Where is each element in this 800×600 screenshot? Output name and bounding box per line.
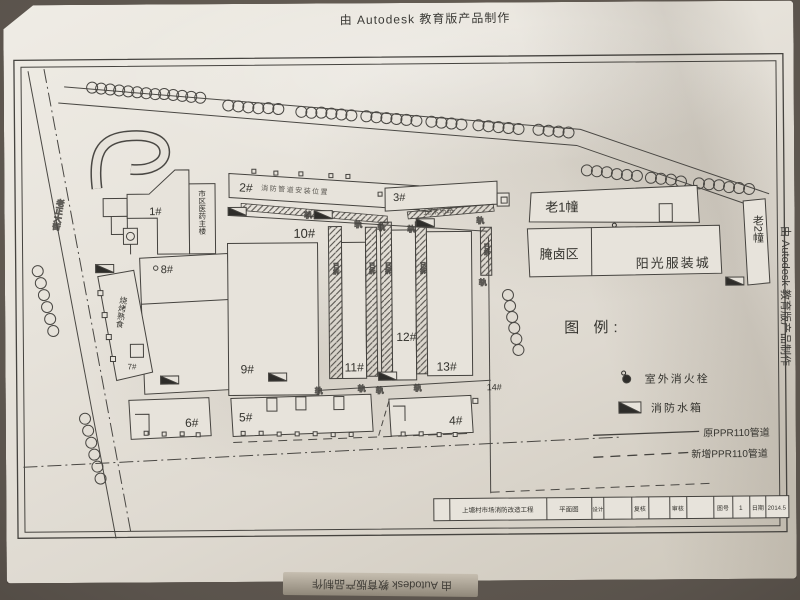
label-building-8: 8#	[161, 264, 174, 276]
building-old1-group: 老1幢	[501, 185, 699, 224]
label-building-12: 12#	[396, 330, 416, 344]
handwritten-mark: 轨	[354, 219, 362, 229]
autodesk-watermark-right: 由 Autodesk 教育版产品制作	[780, 226, 794, 386]
legend-title: 图 例:	[564, 319, 622, 337]
label-building-2: 2#	[239, 180, 254, 195]
street-name-label: 老正大街	[51, 197, 65, 232]
label-building-5: 5#	[239, 410, 253, 424]
hatch-corridor	[365, 227, 377, 376]
label-building-10: 10#	[293, 226, 316, 241]
label-old1: 老1幢	[545, 199, 578, 214]
fire-tank-symbol	[96, 264, 114, 272]
hatch-corridor	[328, 227, 342, 379]
titleblock-date: 2014.5	[768, 506, 787, 512]
legend-pipe-new-label: 新增PPR110管道	[691, 447, 768, 461]
label-building-6: 6#	[185, 416, 199, 430]
fire-tank-symbol	[161, 376, 179, 384]
titleblock-date-label: 日期	[752, 504, 764, 512]
legend-pipe-old-label: 原PPR110管道	[703, 426, 770, 440]
titleblock-drawing: 平面图	[559, 505, 579, 513]
building-1-group: 1# 市区医药主楼	[103, 170, 216, 255]
site-plan-drawing: 1# 市区医药主楼 2# 消防管道安装位置 3# 12米马路	[0, 0, 800, 600]
titleblock-review-label: 审核	[672, 505, 684, 513]
titleblock-design-label: 设计	[592, 505, 604, 513]
fire-tank-symbol	[314, 211, 332, 219]
titleblock-group: 上塘村市场消防改造工程 平面图 设计 复核 审核 图号 1 日期 2014.5	[434, 496, 789, 521]
building-8-group: 8#	[140, 253, 233, 394]
legend-group: 图 例: 室外消火栓 消防水箱 原PPR110管道 新增PPR110管道	[564, 318, 770, 462]
handwritten-mark: 轨	[414, 383, 422, 393]
label-building-9: 9#	[241, 362, 255, 376]
fire-tank-symbol	[726, 277, 744, 285]
legend-tank-label: 消防水箱	[651, 400, 703, 414]
fire-hydrant-symbol	[622, 371, 631, 383]
fire-tank-symbol	[379, 372, 397, 380]
titleblock-check-label: 复核	[634, 505, 646, 513]
label-sunshine-city: 阳光服装城	[636, 255, 711, 271]
handwritten-mark: 轨	[407, 224, 415, 234]
titleblock-sheet-no: 1	[739, 505, 743, 512]
label-brine-zone: 腌卤区	[540, 246, 579, 261]
handwritten-mark: 轨	[479, 277, 487, 287]
building-5-group: 5#	[231, 394, 373, 437]
handwritten-mark: 轨	[315, 386, 323, 396]
building-4-group: 4#	[389, 395, 478, 437]
plan-linework: 1# 市区医药主楼 2# 消防管道安装位置 3# 12米马路	[14, 54, 789, 540]
label-building-11: 11#	[345, 360, 365, 374]
handwritten-mark: 轨	[377, 222, 385, 232]
building-6-group: 6#	[129, 398, 211, 440]
photo-background: 1# 市区医药主楼 2# 消防管道安装位置 3# 12米马路	[0, 0, 800, 600]
fire-tank-symbol	[269, 373, 287, 381]
handwritten-mark: 轨	[304, 210, 312, 220]
label-building-14: 14#	[487, 382, 502, 392]
fire-tank-symbol	[416, 219, 434, 227]
label-building-4: 4#	[449, 413, 463, 427]
hatch-corridor	[380, 222, 392, 380]
legend-pipe-new-line	[593, 452, 689, 457]
handwritten-mark: 轨	[376, 385, 384, 395]
building-brine-sunshine-group: 腌卤区 阳光服装城	[527, 225, 721, 277]
market-rows-group: 10# 9# 11# 12# 13# 14#	[227, 221, 502, 395]
building-old2-group: 老2幢	[743, 199, 770, 285]
autodesk-watermark-top: 由 Autodesk 教育版产品制作	[320, 9, 530, 29]
label-building-1: 1#	[149, 206, 162, 218]
legend-pipe-old-line	[593, 431, 699, 435]
handwritten-mark: 轨	[358, 383, 366, 393]
label-medicine-building: 市区医药主楼	[197, 188, 207, 236]
fire-tank-symbol	[228, 207, 246, 215]
label-building-3: 3#	[393, 192, 406, 204]
autodesk-watermark-bottom: 由 Autodesk 教育版产品制作	[292, 576, 472, 595]
handwritten-mark: 轨	[476, 215, 484, 225]
legend-hydrant-label: 室外消火栓	[645, 371, 710, 386]
label-old2: 老2幢	[751, 215, 764, 244]
titleblock-sheet-label: 图号	[717, 505, 729, 512]
label-building-7: 7#	[128, 362, 138, 371]
label-building-13: 13#	[437, 360, 457, 374]
hatch-corridor	[415, 222, 427, 374]
